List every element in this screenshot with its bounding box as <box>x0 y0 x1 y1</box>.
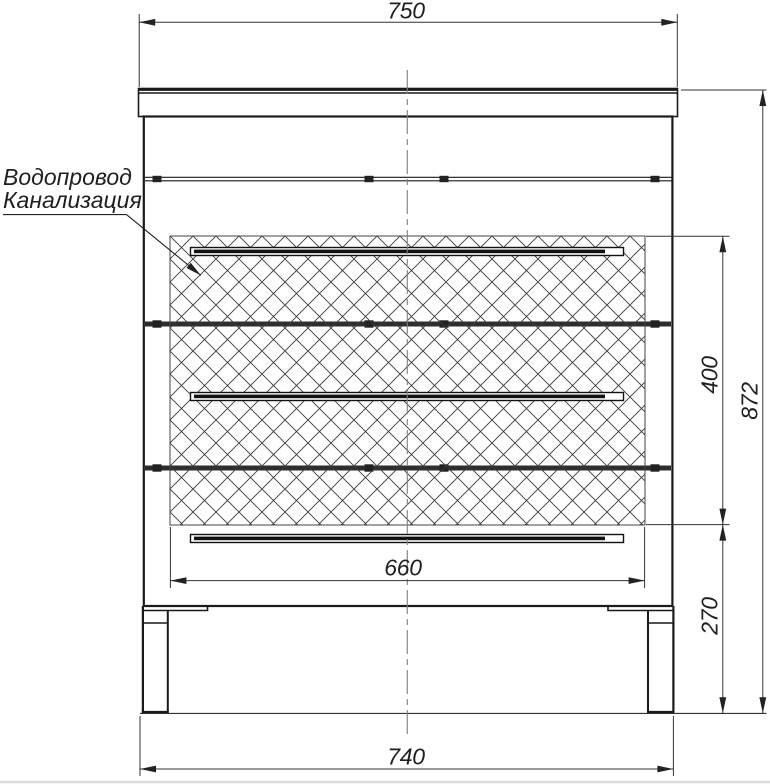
dim-label-overall-height: 872 <box>737 382 764 419</box>
utilities-callout: Водопровод Канализация <box>3 166 142 212</box>
dim-label-body-width: 740 <box>387 744 424 771</box>
drawing-canvas: 750 872 400 270 660 740 Водопровод Канал… <box>0 0 770 784</box>
dim-label-hatch-height: 400 <box>697 356 724 393</box>
right-leg <box>647 606 674 713</box>
drawer-divider-top <box>145 177 672 181</box>
dim-label-top-width: 750 <box>387 0 424 25</box>
callout-line-water: Водопровод <box>3 166 142 189</box>
countertop <box>139 89 678 117</box>
callout-line-sewer: Канализация <box>3 189 142 212</box>
dim-label-hatch-width: 660 <box>384 555 421 582</box>
dim-label-base-height: 270 <box>697 597 724 634</box>
left-leg <box>142 606 169 713</box>
drawing-linework <box>0 0 770 784</box>
dim-top-width <box>139 14 677 87</box>
